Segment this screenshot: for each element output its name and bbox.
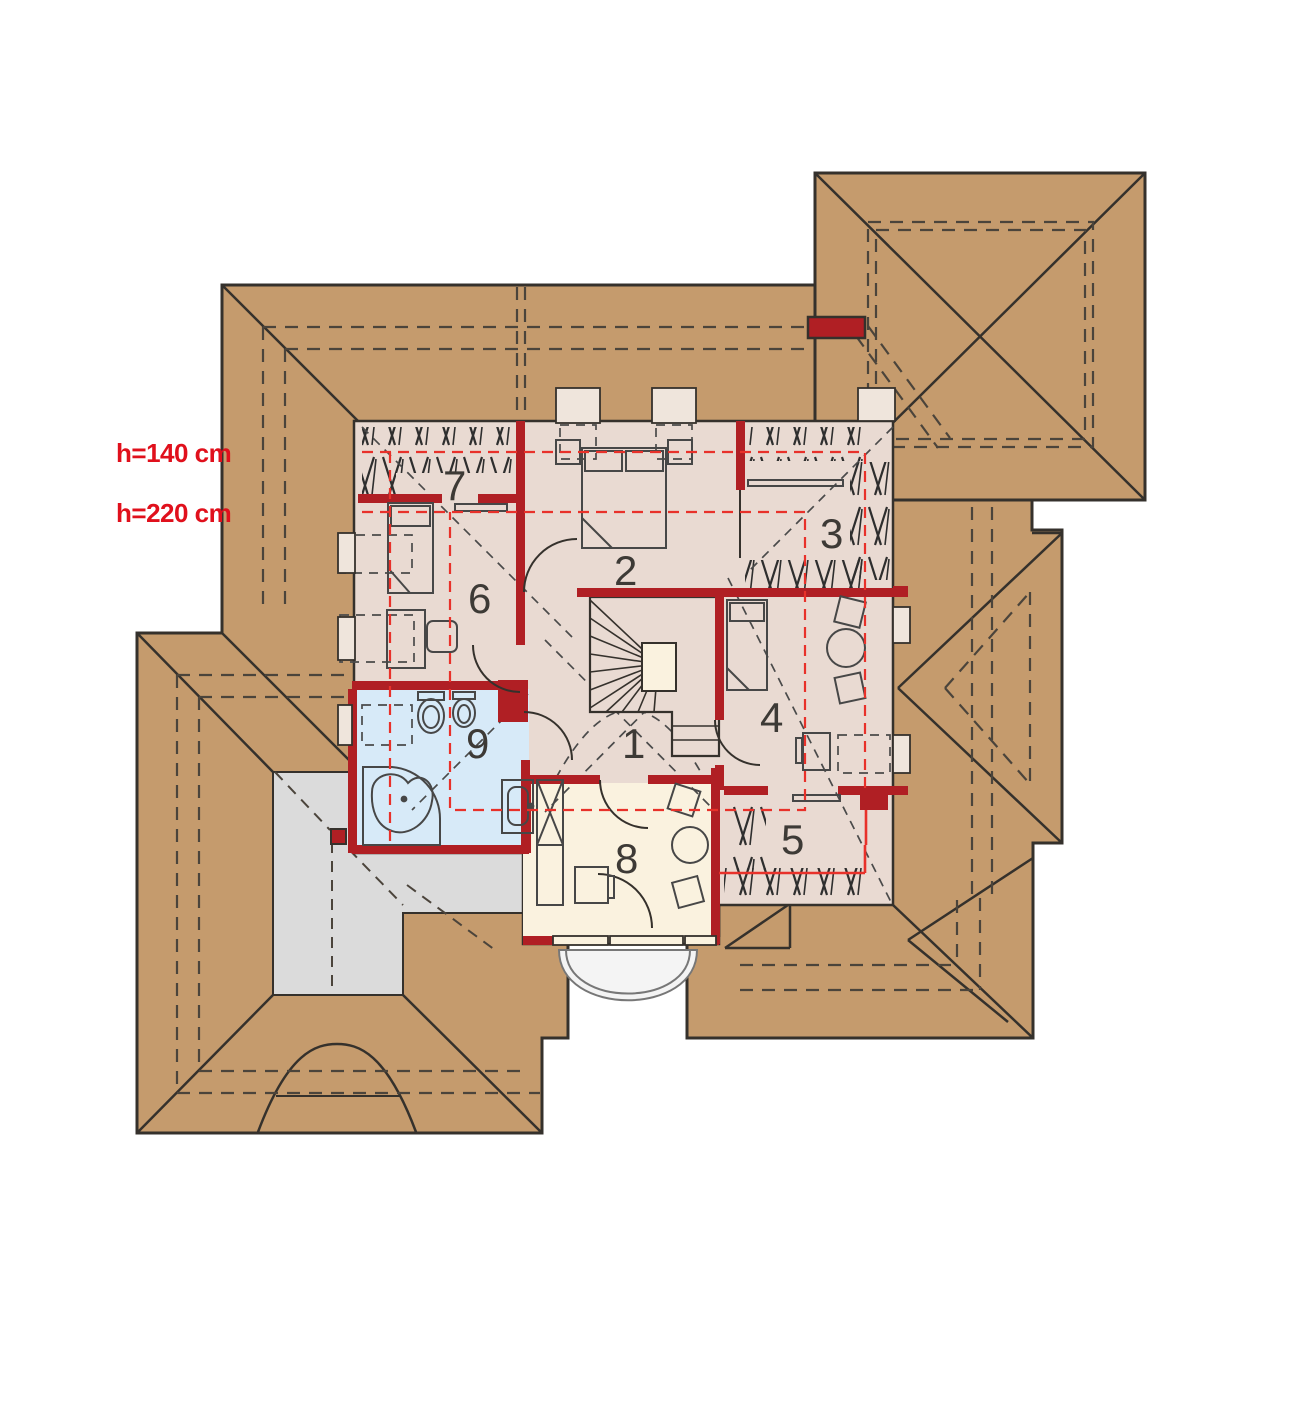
- room-number-label: 6: [468, 575, 491, 622]
- room-number-label: 3: [820, 510, 843, 557]
- roof-vent: [331, 829, 346, 844]
- room-number-label: 2: [614, 547, 637, 594]
- floor-plan-drawing: 123456789h=140 cmh=220 cm: [0, 0, 1301, 1418]
- balcony: [559, 950, 697, 1000]
- room-number-label: 7: [443, 462, 466, 509]
- height-label-h220: h=220 cm: [116, 498, 231, 528]
- room-number-label: 8: [615, 835, 638, 882]
- floor-plan-page: 123456789h=140 cmh=220 cm: [0, 0, 1301, 1418]
- room-number-label: 1: [622, 720, 645, 767]
- height-label-h140: h=140 cm: [116, 438, 231, 468]
- chimney: [808, 317, 865, 338]
- room-number-label: 9: [466, 720, 489, 767]
- room-number-label: 4: [760, 694, 783, 741]
- room-number-label: 5: [781, 816, 804, 863]
